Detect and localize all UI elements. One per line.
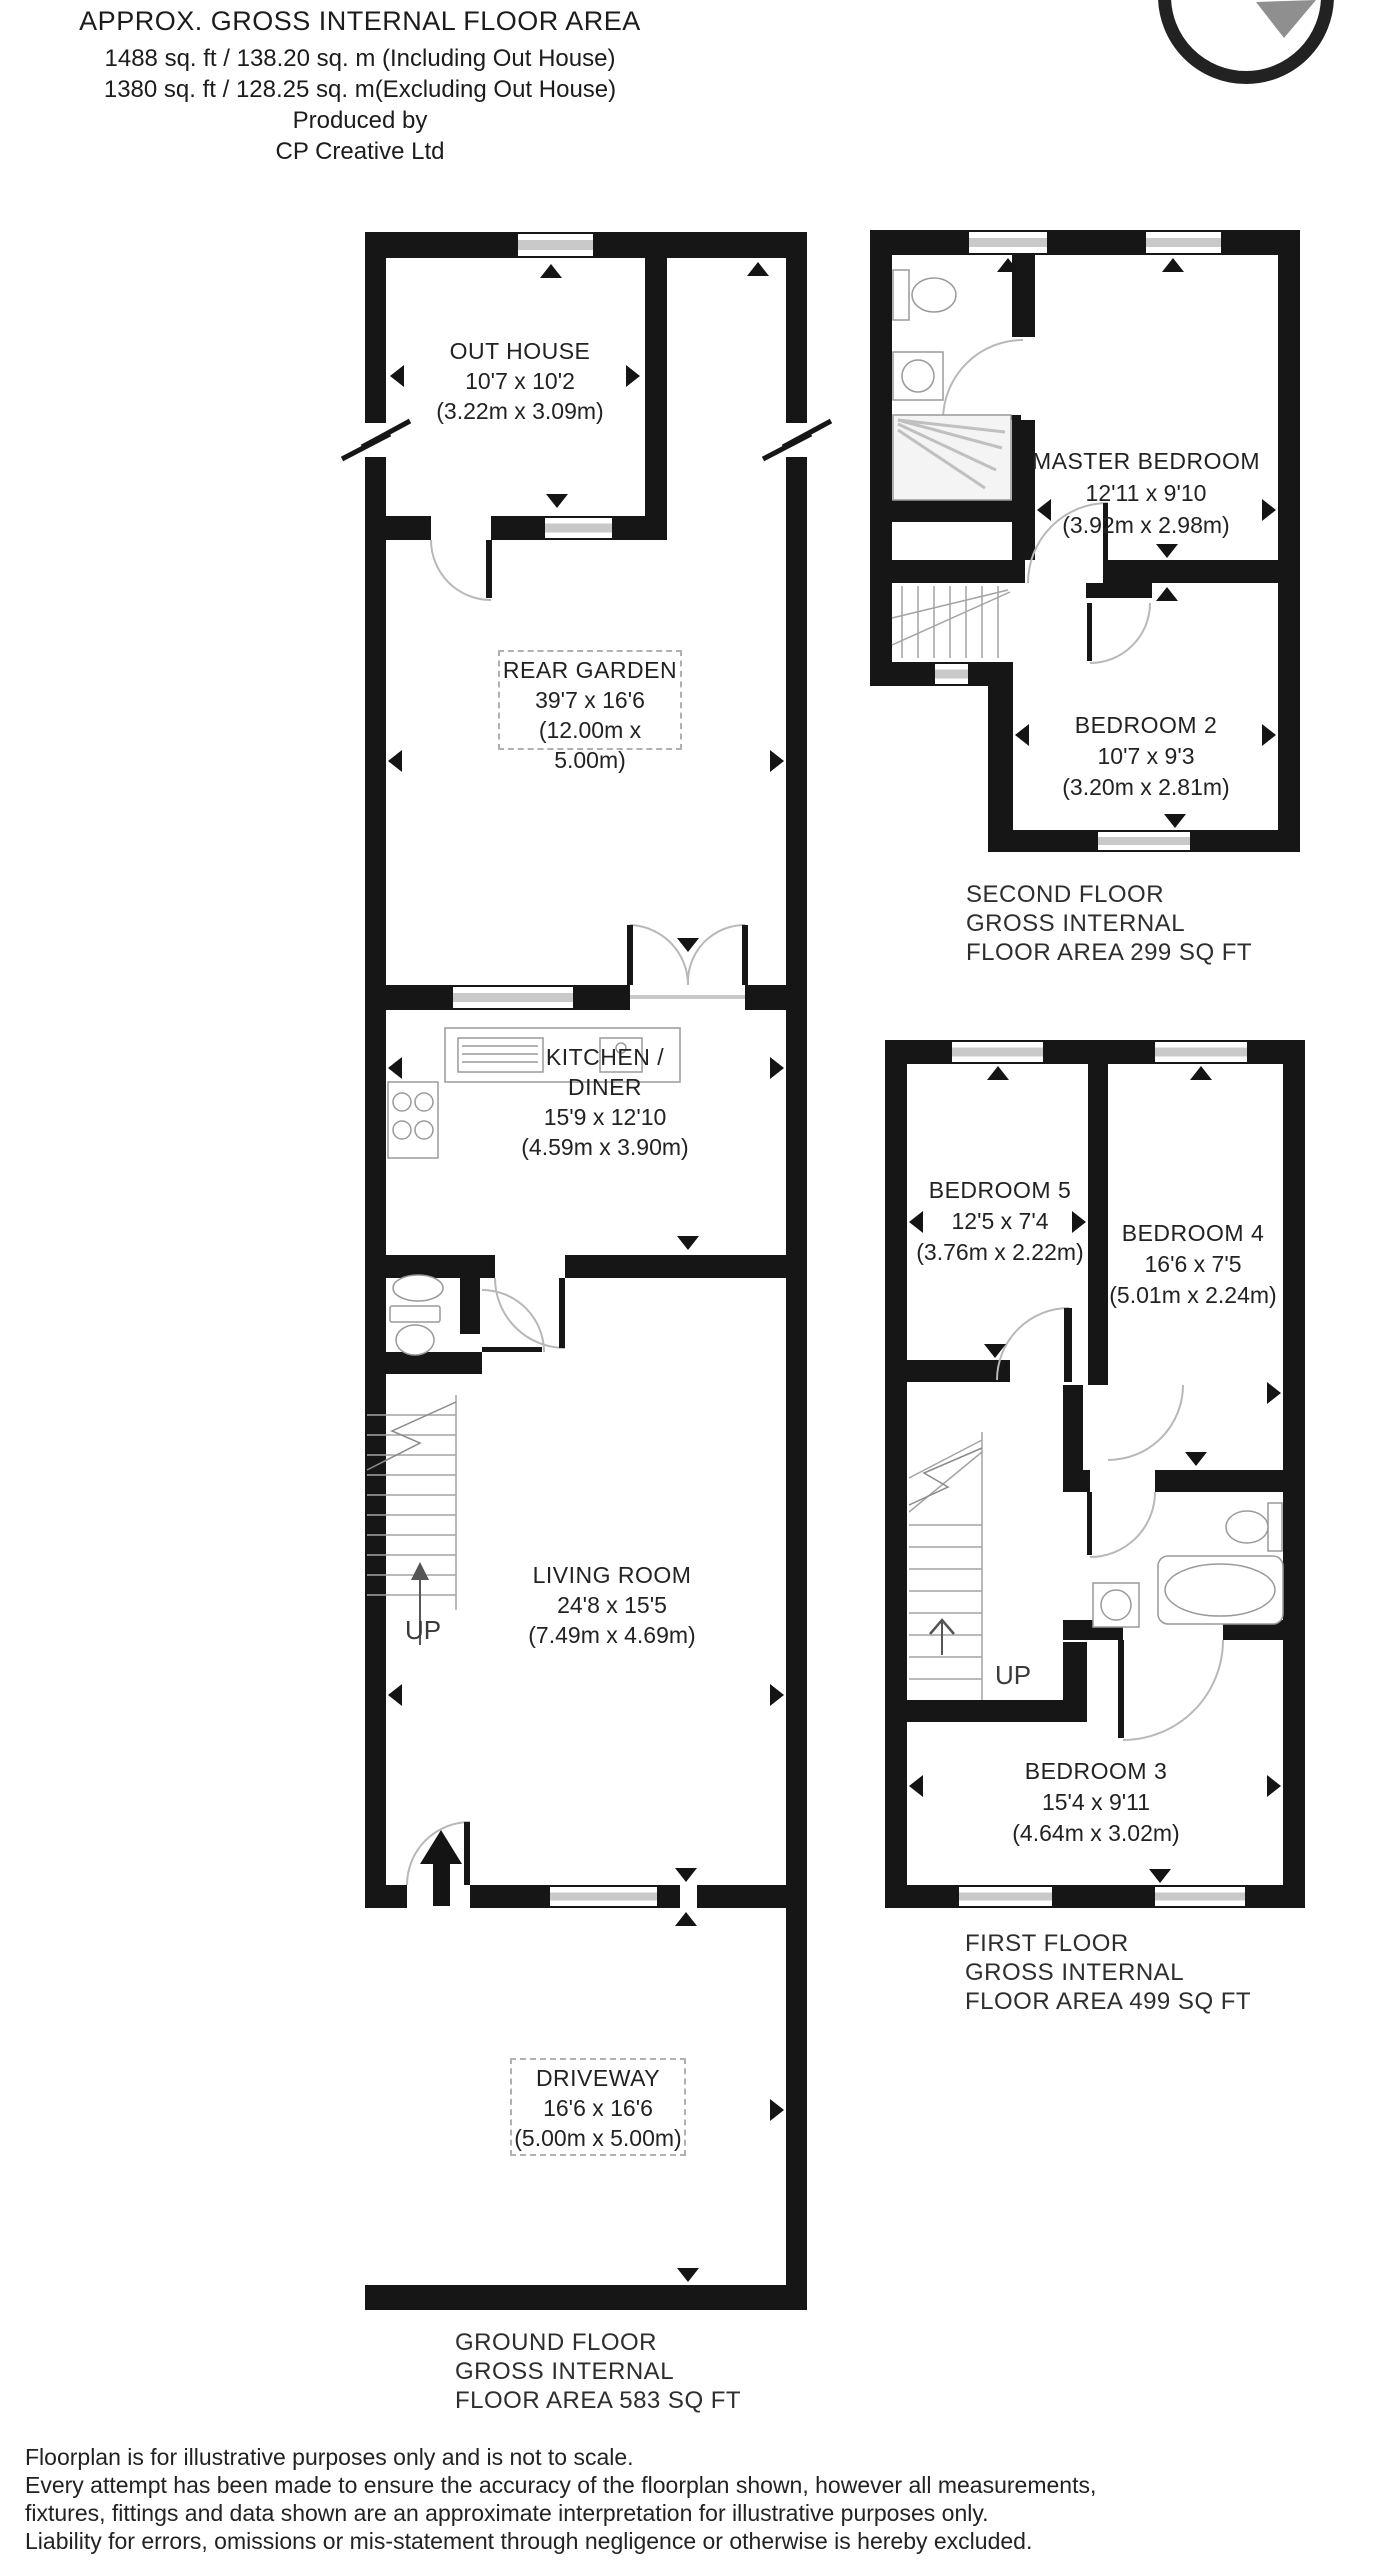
disclaimer-line: Floorplan is for illustrative purposes o… [25,2443,1385,2471]
room-dim-metric: (4.64m x 3.02m) [946,1818,1246,1849]
disclaimer-line: fixtures, fittings and data shown are an… [25,2499,1385,2527]
up-arrow-first-icon [930,1620,954,1655]
room-label-kitchen-diner: KITCHEN / DINER 15'9 x 12'10 (4.59m x 3.… [455,1042,755,1162]
stairs-first-icon [909,1432,982,1700]
room-dim-imperial: 16'6 x 16'6 [512,2093,684,2123]
wc-toilet-icon [390,1306,440,1355]
room-dim-imperial: 24'8 x 15'5 [462,1590,762,1620]
floor-label-line: FLOOR AREA 299 SQ FT [966,938,1252,967]
floor-label-second: SECOND FLOOR GROSS INTERNAL FLOOR AREA 2… [966,880,1252,967]
room-label-rear-garden: REAR GARDEN 39'7 x 16'6 (12.00m x 5.00m) [498,650,682,750]
toilet-icon [1226,1503,1282,1551]
room-dim-imperial: 15'9 x 12'10 [455,1102,755,1132]
disclaimer-line: Every attempt has been made to ensure th… [25,2471,1385,2499]
room-name: DINER [455,1072,755,1102]
disclaimer-line: Liability for errors, omissions or mis-s… [25,2527,1385,2555]
room-dim-metric: (3.22m x 3.09m) [370,396,670,426]
room-dim-imperial: 39'7 x 16'6 [500,685,680,715]
wall-break-icon [342,421,831,459]
bath-icon [1158,1556,1283,1624]
room-dim-imperial: 10'7 x 10'2 [370,366,670,396]
room-name: BEDROOM 4 [1043,1218,1343,1249]
stairs-up-label-ground: UP [398,1615,448,1646]
floor-label-line: FLOOR AREA 583 SQ FT [455,2386,741,2415]
floor-label-line: GROSS INTERNAL [965,1958,1251,1987]
floorplan-page: APPROX. GROSS INTERNAL FLOOR AREA 1488 s… [0,0,1389,2560]
room-dim-metric: (7.49m x 4.69m) [462,1620,762,1650]
room-dim-metric: (5.01m x 2.24m) [1043,1280,1343,1311]
room-name: BEDROOM 5 [850,1175,1150,1206]
room-dim-metric: (5.00m x 5.00m) [512,2123,684,2153]
floor-label-line: SECOND FLOOR [966,880,1252,909]
room-dim-metric: (4.59m x 3.90m) [455,1132,755,1162]
toilet-icon [893,270,956,320]
room-name: OUT HOUSE [370,336,670,366]
floor-label-line: GROSS INTERNAL [455,2357,741,2386]
room-label-driveway: DRIVEWAY 16'6 x 16'6 (5.00m x 5.00m) [510,2058,686,2156]
room-name: REAR GARDEN [500,655,680,685]
room-dim-imperial: 12'11 x 9'10 [996,477,1296,509]
floor-label-line: GROSS INTERNAL [966,909,1252,938]
hob-icon [388,1082,438,1158]
entrance-arrow-icon [420,1830,462,1906]
disclaimer: Floorplan is for illustrative purposes o… [25,2443,1385,2555]
room-label-bedroom-3: BEDROOM 3 15'4 x 9'11 (4.64m x 3.02m) [946,1756,1246,1849]
room-label-bedroom-2: BEDROOM 2 10'7 x 9'3 (3.20m x 2.81m) [996,710,1296,803]
room-name: MASTER BEDROOM [996,445,1296,477]
compass-needle-icon [1256,0,1316,38]
basin-icon [1093,1583,1139,1627]
floor-label-first: FIRST FLOOR GROSS INTERNAL FLOOR AREA 49… [965,1929,1251,2016]
floor-label-line: FLOOR AREA 499 SQ FT [965,1987,1251,2016]
room-name: KITCHEN / [455,1042,755,1072]
room-name: LIVING ROOM [462,1560,762,1590]
room-dim-metric: (3.20m x 2.81m) [996,772,1296,803]
stairs-second-icon [892,586,1010,658]
room-dim-metric: (3.92m x 2.98m) [996,509,1296,541]
room-dim-imperial: 15'4 x 9'11 [946,1787,1246,1818]
room-label-living-room: LIVING ROOM 24'8 x 15'5 (7.49m x 4.69m) [462,1560,762,1650]
room-dim-imperial: 10'7 x 9'3 [996,741,1296,772]
basin-icon [893,352,943,400]
room-name: BEDROOM 3 [946,1756,1246,1787]
room-dim-imperial: 16'6 x 7'5 [1043,1249,1343,1280]
room-label-out-house: OUT HOUSE 10'7 x 10'2 (3.22m x 3.09m) [370,336,670,426]
room-name: BEDROOM 2 [996,710,1296,741]
wc-sink-icon [393,1275,443,1301]
room-label-bedroom-4: BEDROOM 4 16'6 x 7'5 (5.01m x 2.24m) [1043,1218,1343,1311]
stairs-up-label-first: UP [988,1660,1038,1691]
shower-icon [893,415,1011,500]
floor-label-ground: GROUND FLOOR GROSS INTERNAL FLOOR AREA 5… [455,2328,741,2415]
floor-label-line: GROUND FLOOR [455,2328,741,2357]
room-name: DRIVEWAY [512,2063,684,2093]
stairs-ground-icon [367,1395,456,1610]
room-dim-metric: (12.00m x 5.00m) [500,715,680,775]
room-label-master-bedroom: MASTER BEDROOM 12'11 x 9'10 (3.92m x 2.9… [996,445,1296,541]
floor-label-line: FIRST FLOOR [965,1929,1251,1958]
